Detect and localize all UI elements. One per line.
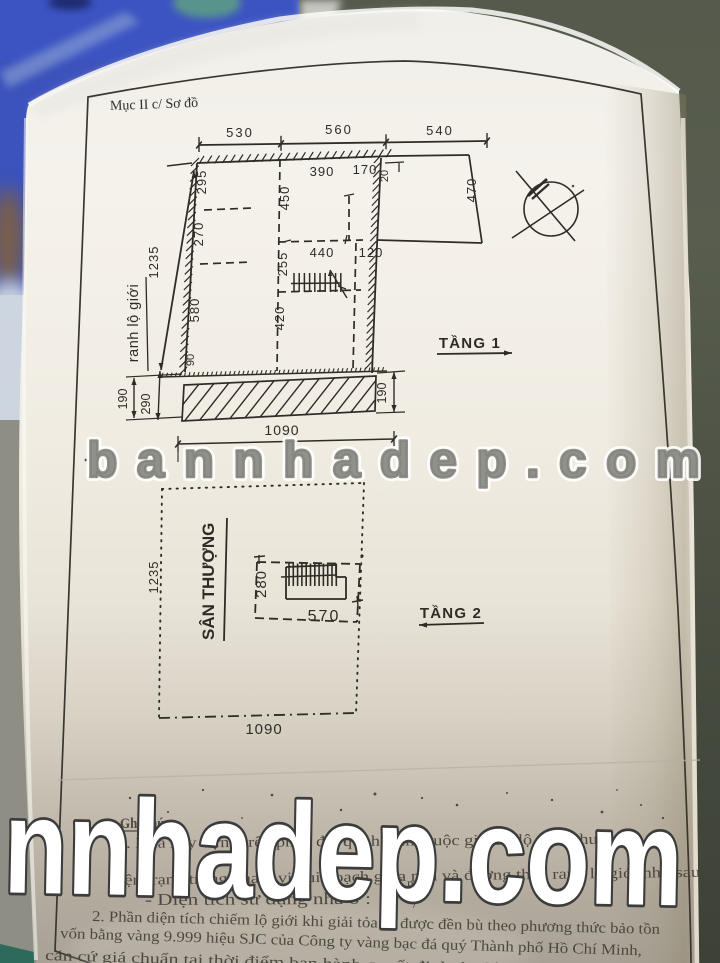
svg-text:540: 540 [426,123,454,138]
svg-text:530: 530 [226,125,254,140]
svg-text:TẦNG 2: TẦNG 2 [420,605,482,622]
svg-text:470: 470 [464,178,479,203]
svg-text:570: 570 [308,608,341,625]
svg-text:270: 270 [191,222,206,247]
svg-text:ranh lộ giới: ranh lộ giới [126,284,142,362]
svg-text:Mục II c/ Sơ đồ: Mục II c/ Sơ đồ [110,96,199,114]
svg-text:190: 190 [375,383,389,404]
svg-text:1090: 1090 [245,721,282,738]
svg-text:190: 190 [116,389,130,410]
svg-text:280: 280 [253,570,270,598]
svg-text:1235: 1235 [146,561,161,594]
svg-text:170: 170 [353,162,378,177]
svg-text:SÂN THƯỢNG: SÂN THƯỢNG [199,523,218,640]
svg-text:580: 580 [187,298,202,323]
svg-text:560: 560 [325,122,353,137]
svg-text:1235: 1235 [146,246,161,279]
svg-text:90: 90 [185,354,197,366]
svg-text:TẦNG 1: TẦNG 1 [439,335,501,352]
svg-text:390: 390 [310,164,335,179]
svg-text:295: 295 [194,170,209,195]
svg-text:255: 255 [275,252,290,277]
svg-text:420: 420 [272,306,287,331]
svg-text:nnhadep.com: nnhadep.com [2,769,684,934]
svg-text:120: 120 [359,245,384,260]
svg-text:440: 440 [310,245,335,260]
svg-text:20: 20 [379,170,391,182]
svg-text:290: 290 [139,394,153,415]
